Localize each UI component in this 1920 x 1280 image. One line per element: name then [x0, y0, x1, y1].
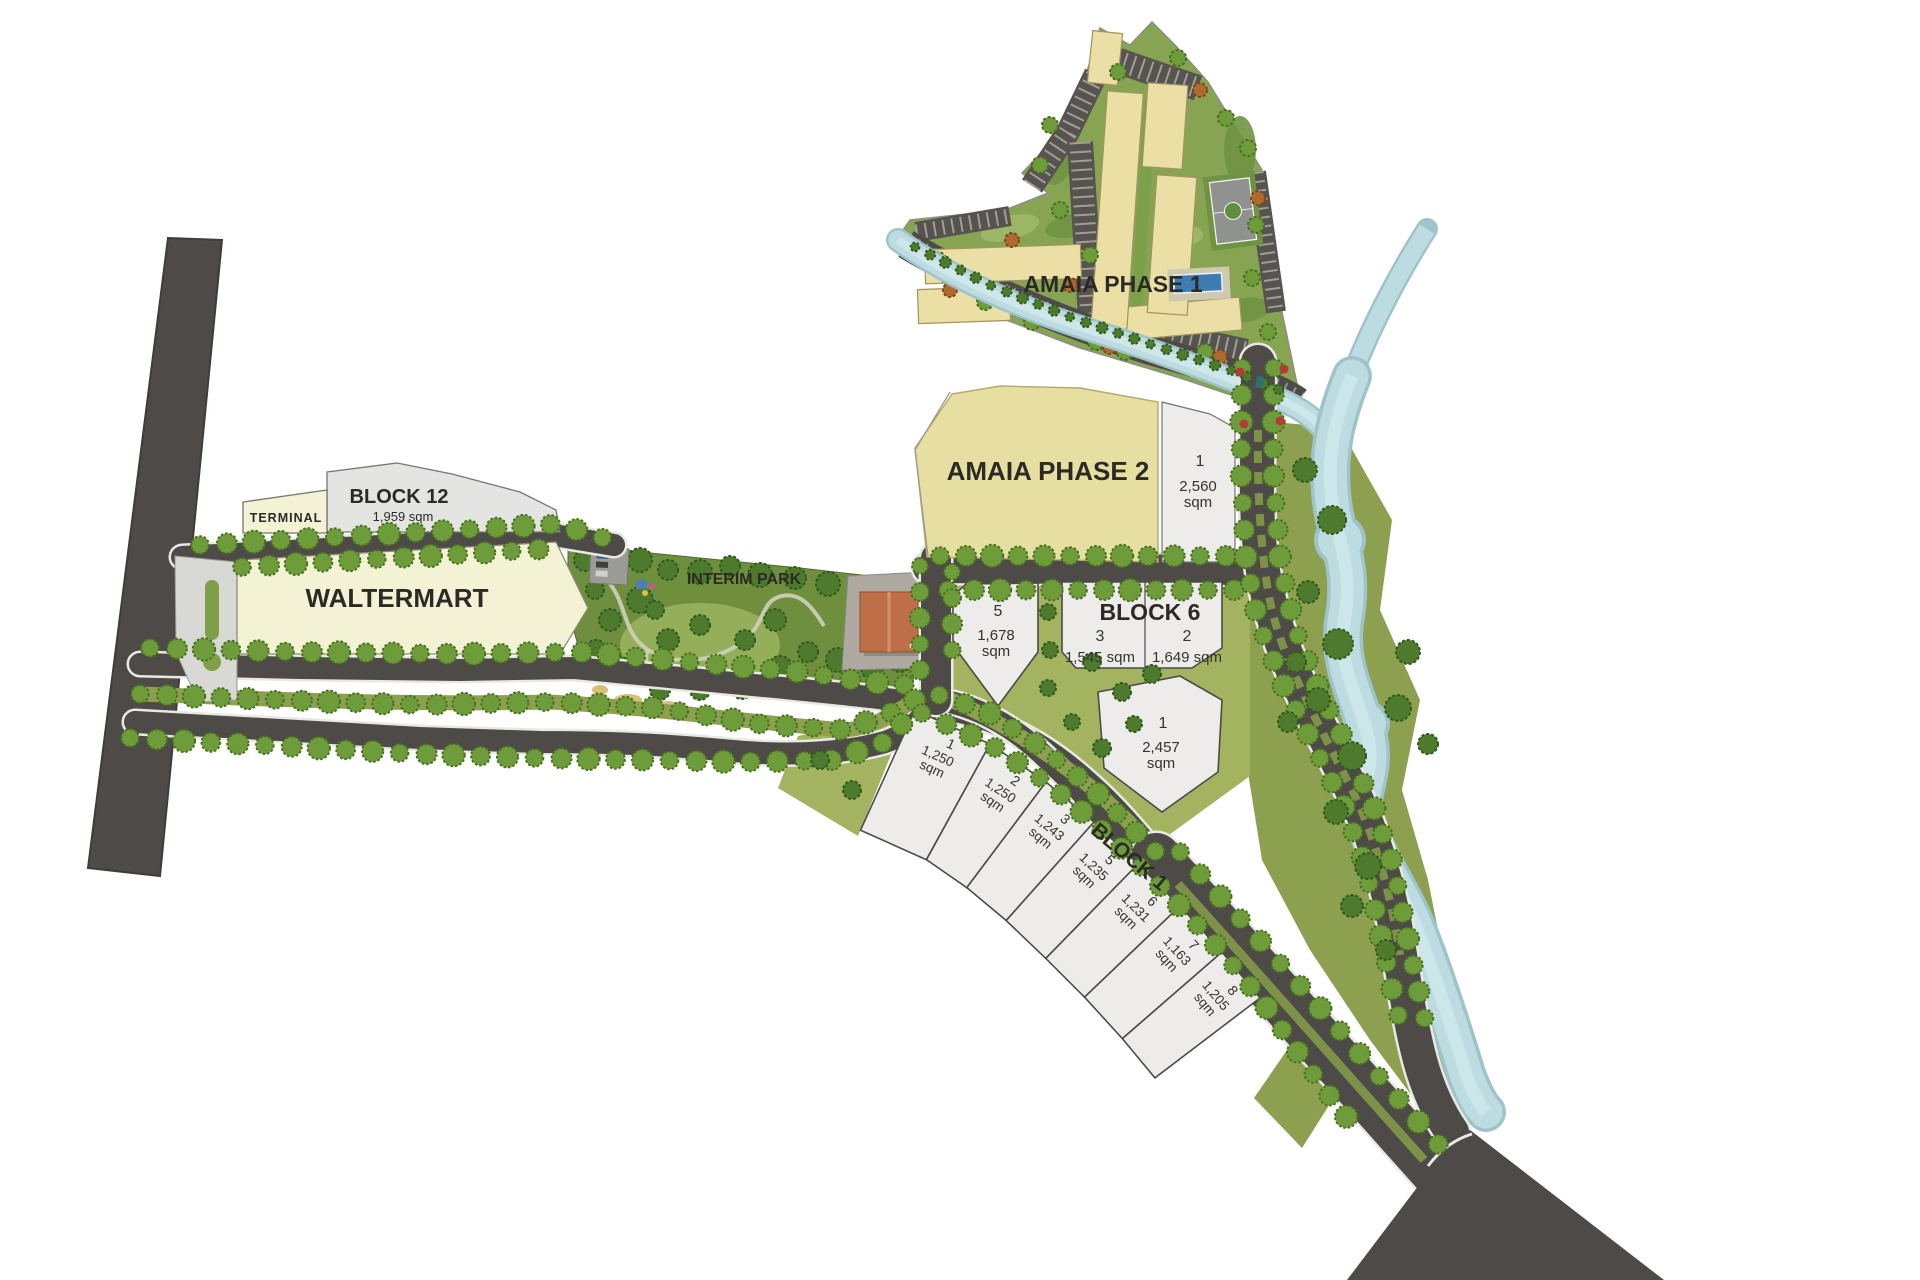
tree-icon: [944, 564, 960, 580]
tree-icon: [1232, 385, 1252, 405]
tree-icon: [798, 642, 818, 662]
tree-icon: [1290, 976, 1310, 996]
tree-icon: [1331, 1021, 1350, 1040]
tree-icon: [628, 548, 652, 572]
tree-icon: [1086, 546, 1106, 566]
tree-icon: [661, 752, 679, 770]
tree-icon: [1061, 547, 1079, 565]
tree-icon: [1263, 465, 1284, 486]
tree-icon: [767, 751, 788, 772]
tree-icon: [956, 546, 976, 566]
tree-icon: [1240, 976, 1260, 996]
tree-icon: [1393, 902, 1413, 922]
tree-icon: [1126, 716, 1142, 732]
tree-icon: [1389, 877, 1407, 895]
tree-icon: [339, 550, 360, 571]
tree-icon: [750, 714, 769, 733]
tree-icon: [944, 642, 961, 659]
tree-icon: [1365, 900, 1385, 920]
tree-icon: [1251, 191, 1265, 205]
tree-icon: [815, 667, 833, 685]
tree-icon: [1231, 909, 1250, 928]
tree-icon: [1218, 110, 1234, 126]
tree-icon: [1113, 329, 1122, 338]
tree-icon: [1311, 749, 1329, 767]
tree-icon: [1363, 797, 1385, 819]
tree-icon: [866, 671, 888, 693]
tree-icon: [1324, 800, 1348, 824]
tree-icon: [989, 579, 1011, 601]
kiosk-roof: [636, 580, 647, 589]
tree-icon: [1385, 695, 1411, 721]
tree-icon: [911, 583, 929, 601]
tree-icon: [1407, 1111, 1429, 1133]
tree-icon: [930, 686, 948, 704]
site-plan-map: AMAIA PHASE 1 AMAIA PHASE 2 BLOCK 12 1,9…: [0, 0, 1920, 1280]
tree-icon: [382, 643, 403, 664]
tree-icon: [1305, 1065, 1323, 1083]
tree-icon: [1082, 247, 1098, 263]
tree-icon: [936, 714, 956, 734]
tree-icon: [1199, 581, 1217, 599]
tree-icon: [1034, 300, 1043, 309]
tree-icon: [328, 641, 350, 663]
tree-icon: [492, 644, 511, 663]
tree-icon: [1241, 574, 1260, 593]
tree-icon: [474, 542, 495, 563]
tree-icon: [271, 531, 290, 550]
tree-icon: [873, 734, 892, 753]
tree-icon: [1319, 1085, 1339, 1105]
basketball-court: [1203, 171, 1264, 251]
tree-icon: [526, 749, 544, 767]
tree-icon: [1396, 640, 1420, 664]
tree-icon: [1224, 957, 1242, 975]
tree-icon: [1250, 930, 1271, 951]
tree-icon: [442, 744, 464, 766]
tree-icon: [891, 714, 912, 735]
tree-icon: [671, 702, 689, 720]
flower-bed-icon: [1236, 368, 1245, 377]
tree-icon: [1146, 340, 1155, 349]
tree-icon: [1280, 599, 1301, 620]
tree-icon: [1163, 545, 1184, 566]
tree-icon: [1052, 202, 1068, 218]
tree-icon: [1119, 579, 1141, 601]
playground-icon: [649, 583, 655, 589]
tree-icon: [1245, 599, 1266, 620]
tree-icon: [964, 580, 984, 600]
tree-icon: [121, 729, 139, 747]
tree-icon: [1170, 50, 1186, 66]
tree-icon: [362, 741, 383, 762]
tree-icon: [308, 737, 330, 759]
tree-icon: [1009, 547, 1028, 566]
tree-icon: [1376, 940, 1396, 960]
block6-north-road: [928, 568, 1252, 570]
tree-icon: [1408, 981, 1429, 1002]
svg-text:sqm: sqm: [1184, 494, 1212, 511]
tree-icon: [721, 708, 743, 730]
tree-icon: [1049, 305, 1060, 316]
residential-building[interactable]: [1142, 83, 1188, 170]
driveway-island: [205, 580, 219, 640]
interim-park-label: INTERIM PARK: [687, 571, 802, 588]
tree-icon: [318, 691, 340, 713]
tree-icon: [1335, 1105, 1357, 1127]
tree-icon: [1416, 1009, 1434, 1027]
tree-icon: [1002, 287, 1012, 297]
tree-icon: [696, 705, 716, 725]
tree-icon: [432, 520, 453, 541]
tree-icon: [956, 265, 965, 274]
tree-icon: [1033, 545, 1054, 566]
tree-icon: [706, 654, 726, 674]
tree-icon: [201, 733, 220, 752]
tree-icon: [572, 642, 592, 662]
terminal-label: TERMINAL: [250, 511, 323, 525]
tree-icon: [1418, 734, 1438, 754]
svg-text:2,560: 2,560: [1179, 478, 1217, 495]
tree-icon: [566, 519, 587, 540]
tree-icon: [1070, 801, 1092, 823]
tree-icon: [1286, 652, 1306, 672]
tree-icon: [658, 560, 678, 580]
tree-icon: [690, 615, 710, 635]
tree-icon: [735, 630, 755, 650]
tree-icon: [986, 281, 995, 290]
svg-text:1: 1: [1196, 453, 1205, 470]
tree-icon: [1017, 581, 1036, 600]
car-icon: [596, 561, 608, 568]
flower-bed-icon: [1280, 365, 1289, 374]
tree-icon: [1389, 1006, 1407, 1024]
tree-icon: [302, 642, 322, 662]
amaia-phase-1-label: AMAIA PHASE 1: [1023, 271, 1203, 297]
tree-icon: [1108, 804, 1127, 823]
tree-icon: [931, 547, 949, 565]
tree-icon: [1273, 1020, 1292, 1039]
tree-icon: [1232, 440, 1251, 459]
tree-icon: [632, 749, 653, 770]
tree-icon: [1188, 916, 1207, 935]
tree-icon: [1273, 674, 1295, 696]
tree-icon: [562, 693, 582, 713]
svg-text:sqm: sqm: [1147, 755, 1175, 772]
tree-icon: [1139, 547, 1158, 566]
tree-icon: [1209, 885, 1231, 907]
tree-icon: [1041, 579, 1062, 600]
tree-icon: [1111, 545, 1133, 567]
tree-icon: [1306, 688, 1330, 712]
tree-icon: [1341, 895, 1363, 917]
tree-icon: [227, 733, 248, 754]
tree-icon: [1003, 719, 1022, 738]
tree-icon: [237, 688, 258, 709]
tree-icon: [463, 643, 485, 665]
amaia-phase-2-label: AMAIA PHASE 2: [947, 456, 1150, 486]
tree-icon: [266, 691, 284, 709]
tree-icon: [1381, 978, 1402, 999]
flower-bed-icon: [1240, 420, 1249, 429]
svg-text:1,678: 1,678: [977, 627, 1015, 644]
tree-icon: [352, 526, 372, 546]
tree-icon: [417, 744, 437, 764]
tree-icon: [1042, 117, 1058, 133]
tree-icon: [1338, 742, 1366, 770]
tree-icon: [551, 748, 571, 768]
tree-icon: [285, 553, 307, 575]
tree-icon: [1267, 494, 1285, 512]
block-12-label: BLOCK 12: [350, 486, 449, 508]
tree-icon: [1096, 322, 1107, 333]
tree-icon: [536, 693, 554, 711]
tree-icon: [471, 747, 490, 766]
tree-icon: [157, 685, 177, 705]
tree-icon: [147, 729, 167, 749]
tree-icon: [1370, 1068, 1388, 1086]
tree-icon: [1268, 520, 1288, 540]
tree-icon: [1024, 733, 1045, 754]
tree-icon: [1293, 458, 1317, 482]
tree-icon: [131, 685, 149, 703]
tree-icon: [830, 720, 850, 740]
tree-icon: [546, 644, 564, 662]
tree-icon: [642, 697, 663, 718]
tree-icon: [776, 715, 797, 736]
tree-icon: [910, 608, 930, 628]
tree-icon: [1255, 627, 1273, 645]
tree-icon: [1042, 642, 1058, 658]
tree-icon: [1065, 313, 1074, 322]
tree-icon: [233, 558, 251, 576]
tree-icon: [577, 748, 599, 770]
tree-icon: [764, 609, 786, 631]
tree-icon: [981, 545, 1003, 567]
tree-icon: [1129, 333, 1140, 344]
tree-icon: [1224, 580, 1244, 600]
tree-icon: [1168, 894, 1190, 916]
tree-icon: [912, 558, 928, 574]
tree-icon: [1031, 769, 1049, 787]
block-12-area-label: 1,959 sqm: [373, 509, 434, 524]
svg-text:1,545 sqm: 1,545 sqm: [1065, 649, 1135, 666]
tree-icon: [1161, 344, 1171, 354]
tree-icon: [1216, 546, 1236, 566]
tree-icon: [960, 724, 982, 746]
tree-icon: [943, 589, 961, 607]
tree-icon: [1110, 64, 1126, 80]
tree-icon: [191, 536, 209, 554]
playground-icon: [642, 590, 648, 596]
tree-icon: [1269, 546, 1291, 568]
tree-icon: [1263, 651, 1283, 671]
tree-icon: [1093, 739, 1111, 757]
tree-icon: [681, 653, 699, 671]
tree-icon: [1126, 822, 1147, 843]
tree-icon: [1194, 355, 1203, 364]
tree-icon: [652, 649, 673, 670]
block-6-label: BLOCK 6: [1100, 599, 1201, 625]
tree-icon: [1234, 494, 1252, 512]
tree-icon: [1068, 766, 1088, 786]
tree-icon: [1309, 997, 1331, 1019]
tree-icon: [141, 639, 159, 657]
tree-icon: [1171, 579, 1192, 600]
tree-icon: [313, 553, 332, 572]
tree-icon: [1069, 581, 1087, 599]
tree-icon: [913, 704, 931, 722]
tree-icon: [1240, 140, 1256, 156]
tree-icon: [372, 693, 393, 714]
tree-icon: [528, 539, 548, 559]
tree-icon: [1081, 317, 1091, 327]
tree-icon: [910, 660, 929, 679]
tree-icon: [193, 638, 215, 660]
tree-icon: [911, 243, 920, 252]
tree-icon: [173, 730, 195, 752]
tree-icon: [427, 695, 447, 715]
tree-icon: [517, 642, 538, 663]
tree-icon: [1235, 546, 1257, 568]
tree-icon: [1064, 714, 1080, 730]
tree-icon: [761, 660, 780, 679]
tree-icon: [391, 744, 409, 762]
tree-icon: [1381, 849, 1402, 870]
tree-icon: [247, 640, 268, 661]
tree-icon: [786, 661, 807, 682]
tree-icon: [1143, 665, 1161, 683]
tree-icon: [1264, 440, 1283, 459]
tree-icon: [448, 545, 467, 564]
tree-icon: [741, 752, 760, 771]
tree-icon: [732, 656, 754, 678]
tree-icon: [1297, 581, 1319, 603]
tree-icon: [167, 639, 187, 659]
tree-icon: [346, 693, 365, 712]
svg-text:2: 2: [1183, 628, 1192, 645]
tree-icon: [368, 550, 386, 568]
svg-text:3: 3: [1096, 628, 1105, 645]
tree-icon: [394, 547, 414, 567]
tree-icon: [541, 515, 560, 534]
svg-text:1: 1: [1159, 715, 1168, 732]
tree-icon: [626, 648, 645, 667]
tree-icon: [276, 643, 294, 661]
svg-text:2,457: 2,457: [1142, 739, 1180, 756]
tree-icon: [453, 693, 475, 715]
tree-icon: [955, 694, 975, 714]
tree-icon: [1007, 752, 1028, 773]
tree-icon: [222, 641, 241, 660]
tree-icon: [986, 738, 1005, 757]
tree-icon: [1231, 465, 1252, 486]
tree-icon: [411, 645, 429, 663]
tree-icon: [1349, 1043, 1370, 1064]
tree-icon: [1322, 772, 1342, 792]
car-icon: [595, 570, 607, 577]
tree-icon: [406, 523, 425, 542]
tree-icon: [282, 737, 302, 757]
tree-icon: [217, 533, 237, 553]
tree-icon: [1397, 928, 1419, 950]
flower-bed-icon: [1276, 417, 1285, 426]
tree-icon: [606, 750, 625, 769]
tree-icon: [1191, 547, 1209, 565]
tree-icon: [259, 555, 279, 575]
tree-icon: [1297, 723, 1318, 744]
tree-icon: [1193, 83, 1207, 97]
tree-icon: [1389, 1089, 1409, 1109]
tree-icon: [1040, 680, 1056, 696]
tree-icon: [846, 741, 868, 763]
tree-icon: [212, 688, 231, 707]
tree-icon: [979, 702, 1001, 724]
tree-icon: [512, 515, 534, 537]
tree-icon: [1051, 784, 1071, 804]
tree-icon: [1287, 1041, 1308, 1062]
tree-icon: [461, 520, 479, 538]
waltermart-label: WALTERMART: [306, 583, 489, 613]
tree-icon: [503, 542, 521, 560]
tree-icon: [497, 746, 518, 767]
tree-icon: [1205, 934, 1226, 955]
tree-icon: [712, 750, 734, 772]
tree-icon: [646, 601, 664, 619]
tree-icon: [1032, 157, 1048, 173]
tree-icon: [616, 697, 635, 716]
tree-icon: [840, 669, 860, 689]
tree-icon: [1373, 825, 1392, 844]
svg-text:sqm: sqm: [982, 643, 1010, 660]
tree-icon: [816, 572, 840, 596]
tree-icon: [1248, 217, 1264, 233]
tree-icon: [1256, 996, 1278, 1018]
tree-icon: [912, 636, 929, 653]
tree-icon: [419, 545, 441, 567]
tree-icon: [686, 751, 706, 771]
tree-icon: [1040, 604, 1056, 620]
tree-icon: [1177, 349, 1188, 360]
tree-icon: [598, 643, 620, 665]
tree-icon: [1227, 366, 1236, 375]
tree-icon: [1113, 683, 1131, 701]
tree-icon: [1147, 581, 1166, 600]
tree-icon: [970, 272, 981, 283]
tree-icon: [1094, 580, 1114, 600]
tree-icon: [377, 523, 399, 545]
tree-icon: [437, 644, 457, 664]
tree-icon: [292, 691, 312, 711]
tree-icon: [1171, 843, 1189, 861]
tree-icon: [811, 751, 829, 769]
tree-icon: [587, 693, 609, 715]
tree-icon: [183, 685, 205, 707]
tree-icon: [1210, 360, 1221, 371]
tree-icon: [599, 609, 621, 631]
tree-icon: [243, 531, 265, 553]
tree-icon: [1146, 842, 1164, 860]
tree-icon: [657, 629, 679, 651]
tree-icon: [1278, 712, 1298, 732]
tree-icon: [854, 711, 876, 733]
tree-icon: [1404, 956, 1423, 975]
tree-icon: [256, 736, 274, 754]
tree-icon: [1274, 385, 1283, 394]
tree-icon: [1190, 864, 1210, 884]
tree-icon: [1355, 853, 1381, 879]
tree-icon: [1048, 751, 1066, 769]
